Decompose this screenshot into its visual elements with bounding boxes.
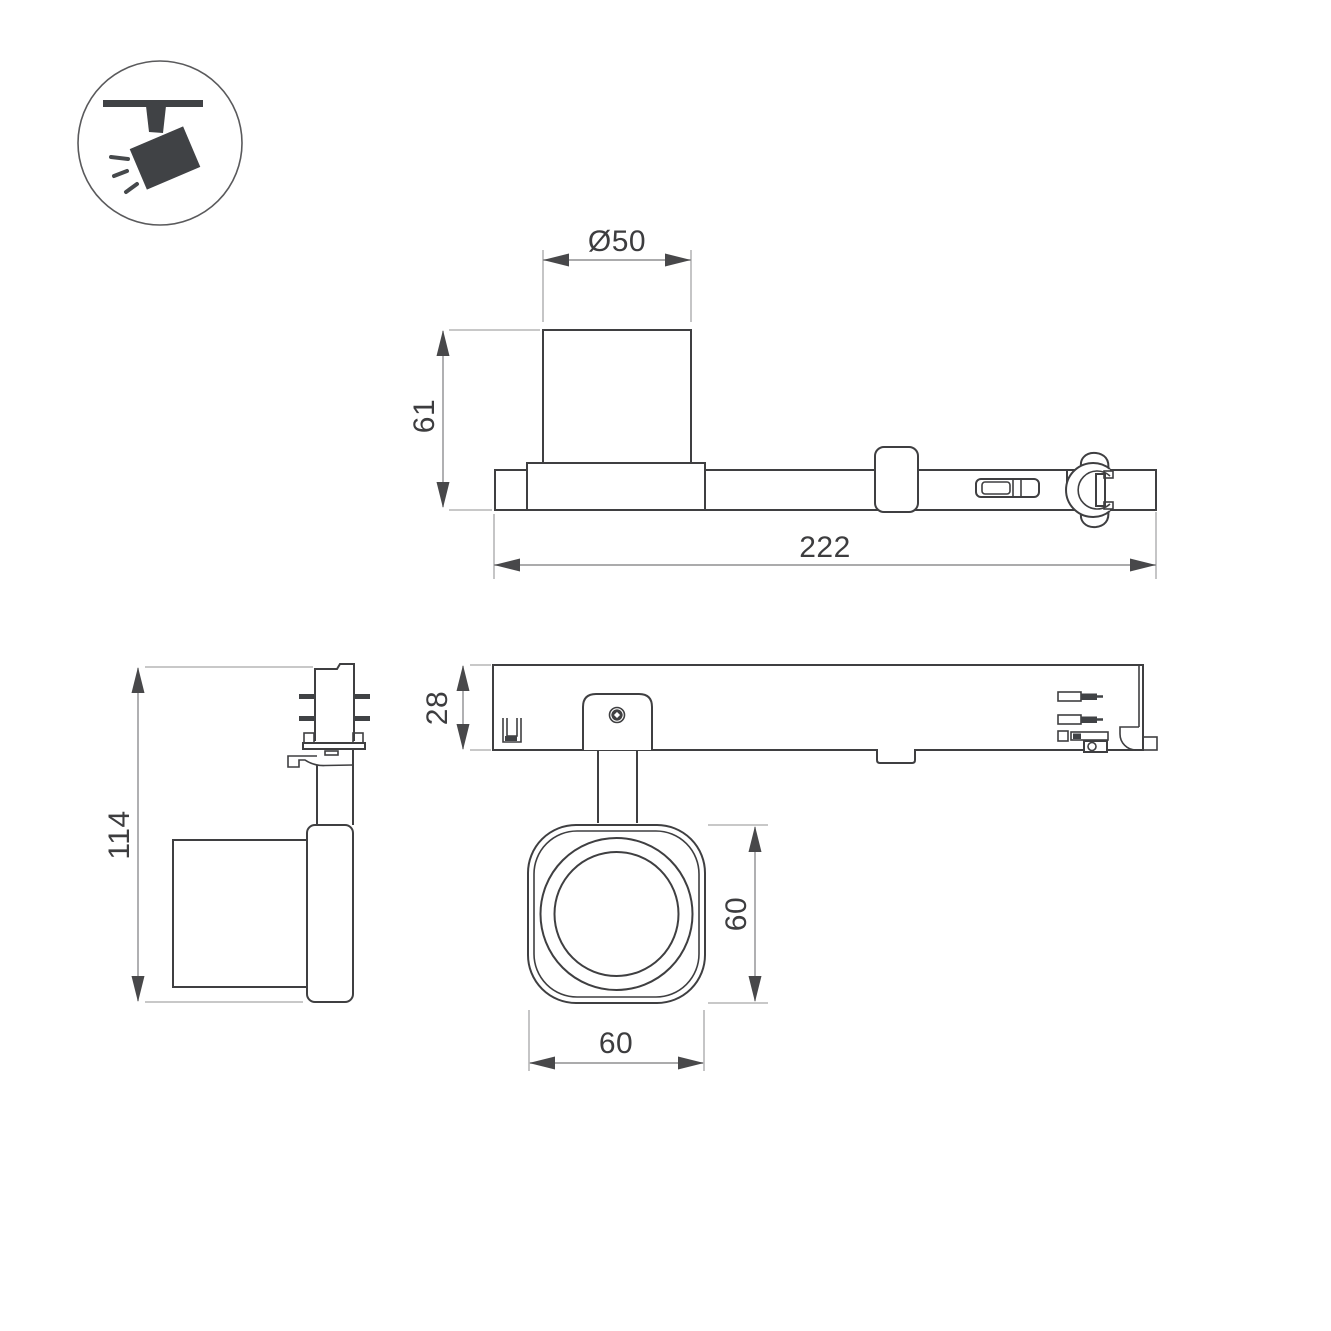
technical-drawing: Ø50 61 222	[0, 0, 1331, 1331]
slide-switch	[976, 479, 1039, 497]
adapter-block	[315, 664, 354, 741]
dim-depth-28: 28	[421, 665, 491, 750]
dim-label-head-height: 60	[720, 897, 753, 931]
head-back-slab	[307, 825, 353, 1002]
dim-label-height: 61	[408, 399, 441, 433]
dim-label-diameter: Ø50	[588, 225, 646, 258]
icon-ceiling-bar	[103, 100, 203, 107]
drawing-svg: Ø50 61 222	[0, 0, 1331, 1331]
screw-plate	[583, 694, 652, 750]
head-bottom-face	[528, 825, 705, 1003]
head-body	[173, 840, 307, 987]
adapter-hook	[288, 756, 353, 767]
dim-diameter-50: Ø50	[543, 225, 691, 322]
dim-label-length: 222	[799, 531, 851, 564]
dim-head-height-60: 60	[708, 825, 768, 1003]
track-spotlight-icon	[78, 61, 242, 225]
end-stub	[1143, 737, 1157, 750]
mounting-tab	[875, 447, 918, 512]
side-view: Ø50 61 222	[408, 225, 1156, 579]
dim-label-fixture-height: 114	[103, 810, 136, 859]
dim-label-depth: 28	[421, 691, 454, 725]
dim-label-head-width: 60	[599, 1027, 633, 1060]
dim-head-width-60: 60	[529, 1010, 704, 1071]
front-view: 114	[103, 664, 370, 1002]
bottom-view: 28 60 60	[421, 665, 1157, 1071]
dim-length-222: 222	[494, 512, 1156, 579]
icon-stem	[146, 106, 166, 133]
end-foot	[1084, 741, 1107, 752]
adapter-slot	[325, 751, 338, 755]
cylinder-body	[543, 330, 691, 463]
twist-lock-latch	[1066, 453, 1113, 527]
under-rail-tab	[877, 749, 915, 763]
adapter-base	[527, 463, 705, 510]
